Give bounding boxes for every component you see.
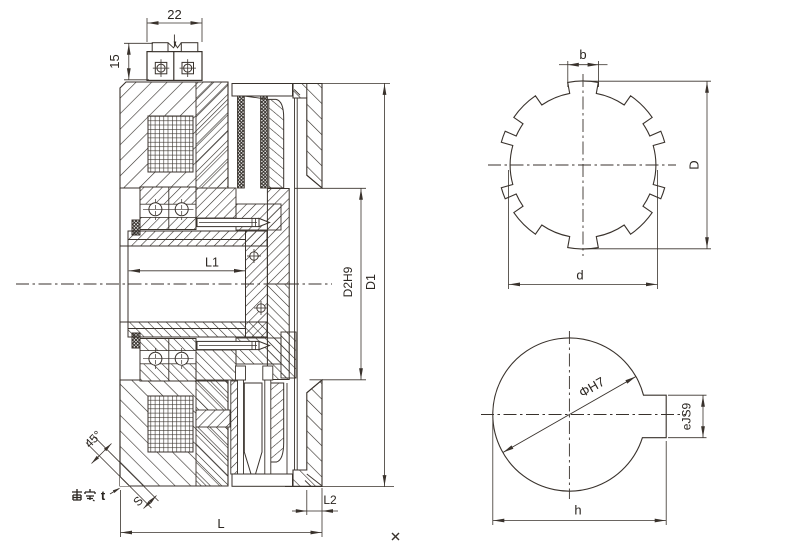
svg-text:t: t <box>101 488 106 503</box>
svg-text:D1: D1 <box>364 274 378 290</box>
svg-text:L: L <box>217 516 224 531</box>
svg-text:L1: L1 <box>205 256 219 270</box>
svg-text:eJS9: eJS9 <box>680 403 694 431</box>
svg-text:d: d <box>576 268 583 283</box>
svg-text:h: h <box>574 503 581 518</box>
svg-text:D: D <box>687 160 702 169</box>
svg-text:22: 22 <box>167 7 181 22</box>
svg-text:L2: L2 <box>323 493 337 507</box>
svg-text:15: 15 <box>107 54 122 68</box>
svg-text:D2H9: D2H9 <box>341 266 355 297</box>
svg-text:b: b <box>579 47 586 62</box>
